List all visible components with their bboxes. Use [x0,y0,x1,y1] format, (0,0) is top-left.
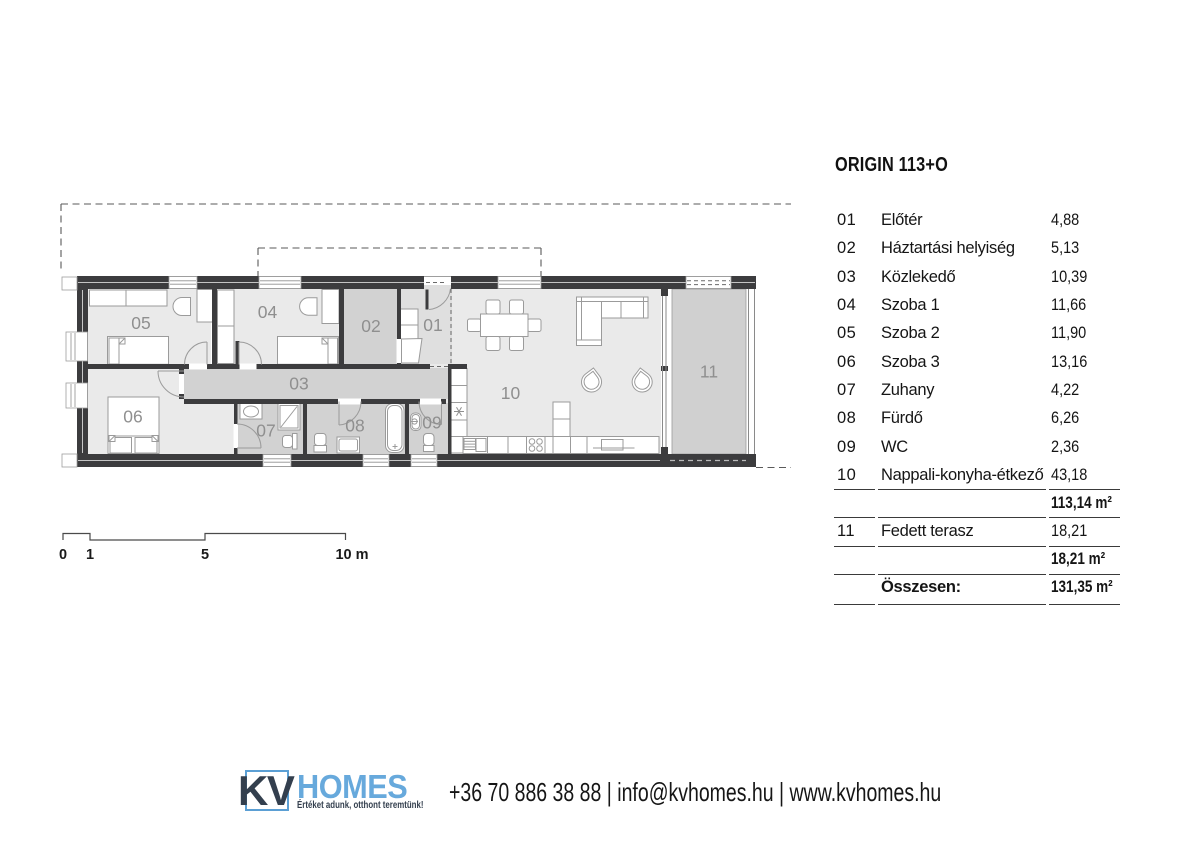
svg-text:05: 05 [131,313,150,333]
svg-text:03: 03 [289,374,308,394]
svg-text:01: 01 [423,315,442,335]
svg-text:09: 09 [422,413,441,433]
svg-text:08: 08 [345,416,364,436]
svg-text:1: 1 [86,547,94,563]
svg-text:10 m: 10 m [335,547,368,563]
svg-text:10: 10 [501,383,521,403]
svg-text:06: 06 [123,407,142,427]
svg-text:11: 11 [700,362,718,382]
svg-text:0: 0 [59,547,67,563]
svg-text:07: 07 [256,421,275,441]
svg-text:5: 5 [201,547,209,563]
svg-text:04: 04 [258,302,278,322]
svg-text:02: 02 [361,316,380,336]
